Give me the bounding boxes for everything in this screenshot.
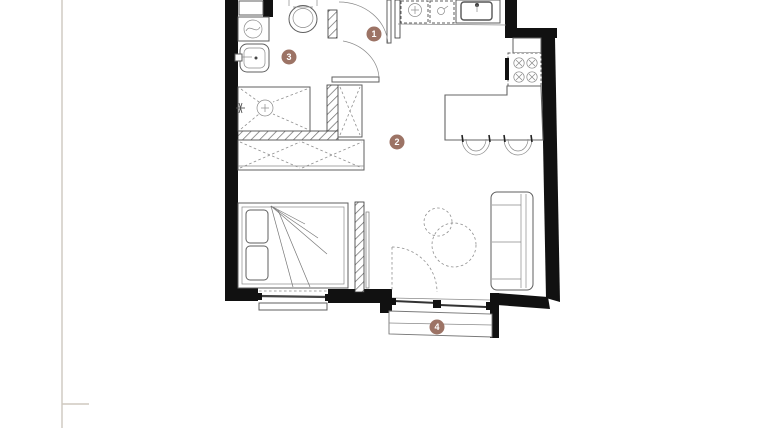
sheet-edge-rule [62,0,89,428]
kitchen [398,0,543,155]
bathroom-door [332,41,379,82]
room-marker-2: 2 [390,135,405,150]
sofa [491,192,533,290]
entrance-door [339,0,391,44]
coffee-tables [424,208,476,267]
walk-in-shower [236,87,310,131]
washing-machine [238,17,269,41]
svg-text:3: 3 [286,52,291,62]
cooktop [505,53,541,86]
bedroom-window [255,291,332,310]
bathroom-fixtures [235,0,317,131]
kitchen-sink [456,0,500,23]
toilet [289,0,317,33]
wardrobe [238,140,364,170]
room-marker-4: 4 [430,320,445,335]
svg-text:2: 2 [394,137,399,147]
floor-plan-drawing: 1 2 3 4 [0,0,760,428]
dishwasher [401,1,428,23]
kitchen-island [445,86,543,140]
utility-cabinet [239,1,263,15]
double-bed [238,203,348,288]
svg-text:1: 1 [371,29,376,39]
balcony-door-swing [392,247,437,292]
svg-text:4: 4 [434,322,439,332]
counter-segment [513,38,541,53]
room-marker-3: 3 [282,50,297,65]
room-marker-1: 1 [367,27,382,42]
wash-basin [235,44,269,72]
floor-plan-page: 1 2 3 4 [0,0,760,428]
counter-appliance [430,1,454,23]
tall-closet [338,85,362,137]
